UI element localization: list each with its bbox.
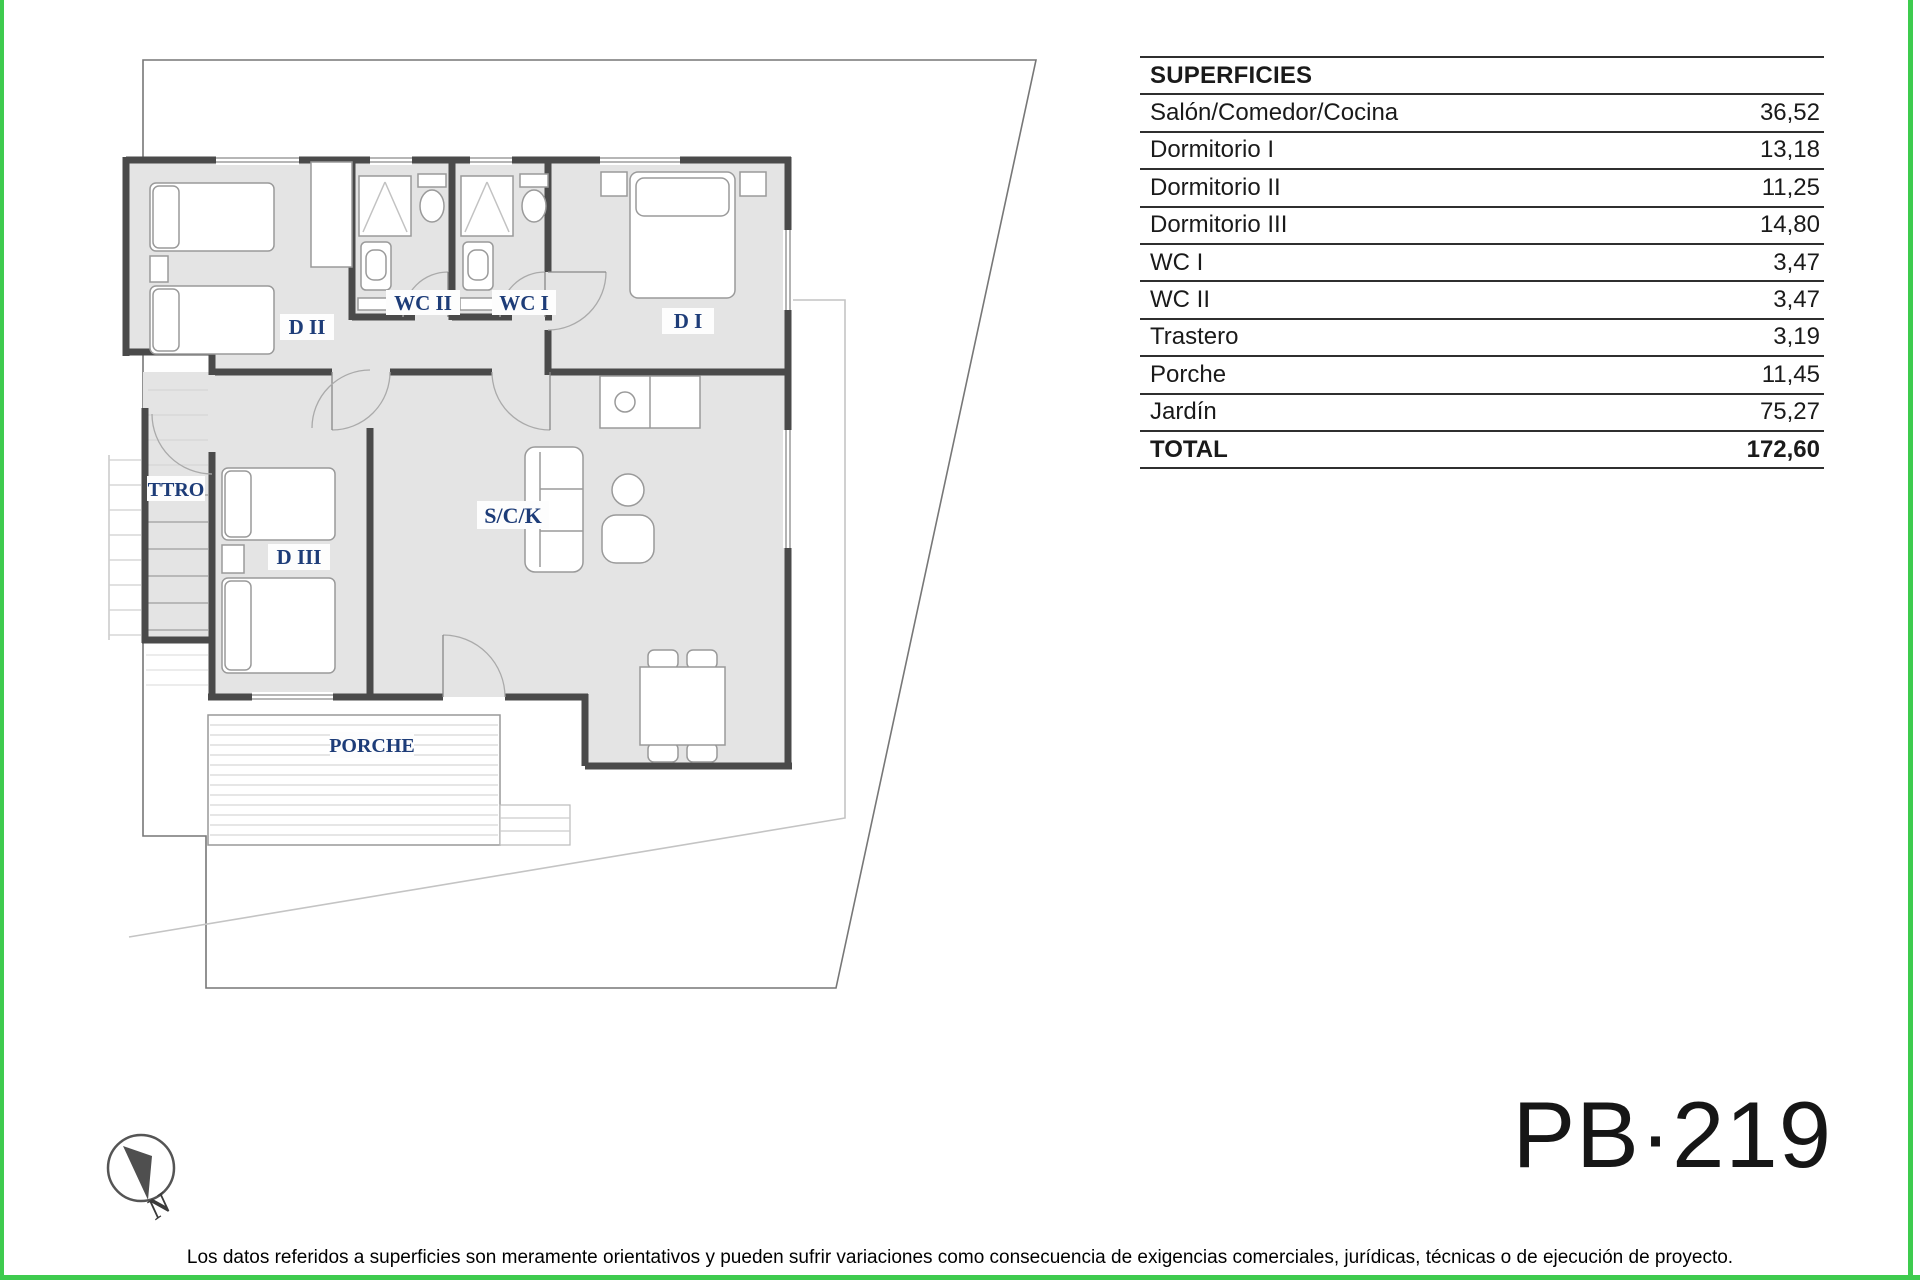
row-label: Trastero	[1140, 325, 1773, 349]
table-row: Dormitorio I 13,18	[1140, 131, 1824, 168]
table-row: Porche 11,45	[1140, 355, 1824, 392]
table-row: Dormitorio III 14,80	[1140, 206, 1824, 243]
row-label: Dormitorio III	[1140, 213, 1760, 237]
row-value: 11,45	[1762, 363, 1824, 387]
row-label: Dormitorio I	[1140, 138, 1760, 162]
plan-code: PB·219	[1380, 1088, 1832, 1182]
green-border-left	[0, 0, 4, 1280]
row-value: 3,47	[1773, 288, 1824, 312]
table-row: WC I 3,47	[1140, 243, 1824, 280]
green-border-bottom	[0, 1275, 1920, 1280]
north-arrow: N	[108, 1135, 179, 1226]
row-label: WC I	[1140, 251, 1773, 275]
row-value: 11,25	[1762, 176, 1824, 200]
table-header-label: SUPERFICIES	[1140, 64, 1824, 88]
disclaimer-text: Los datos referidos a superficies son me…	[0, 1247, 1920, 1269]
row-label: Jardín	[1140, 400, 1760, 424]
room-label-d2: D II	[289, 315, 326, 339]
room-label-d3: D III	[277, 545, 322, 569]
row-label: Dormitorio II	[1140, 176, 1762, 200]
room-label-wc1: WC I	[499, 291, 549, 315]
row-label: Salón/Comedor/Cocina	[1140, 101, 1760, 125]
row-value: 3,47	[1773, 251, 1824, 275]
row-value: 36,52	[1760, 101, 1824, 125]
row-label: WC II	[1140, 288, 1773, 312]
room-label-ttro: TTRO	[148, 479, 205, 501]
floor-plan: D II WC II WC I D I TTRO D III S/C/K POR…	[90, 30, 1060, 1240]
total-value: 172,60	[1747, 438, 1824, 462]
table-total-row: TOTAL 172,60	[1140, 430, 1824, 469]
table-row: Jardín 75,27	[1140, 393, 1824, 430]
room-label-wc2: WC II	[394, 291, 452, 315]
total-label: TOTAL	[1140, 438, 1747, 462]
plan-sheet: { "colors": { "accent_green": "#3ecb4e",…	[0, 0, 1920, 1280]
row-value: 3,19	[1773, 325, 1824, 349]
row-value: 14,80	[1760, 213, 1824, 237]
row-value: 75,27	[1760, 400, 1824, 424]
table-row: WC II 3,47	[1140, 280, 1824, 317]
surfaces-table: SUPERFICIES Salón/Comedor/Cocina 36,52 D…	[1140, 56, 1824, 469]
surfaces-table-header: SUPERFICIES	[1140, 56, 1824, 93]
table-row: Salón/Comedor/Cocina 36,52	[1140, 93, 1824, 130]
room-label-d1: D I	[674, 309, 703, 333]
table-row: Dormitorio II 11,25	[1140, 168, 1824, 205]
row-value: 13,18	[1760, 138, 1824, 162]
room-label-sck: S/C/K	[484, 503, 541, 528]
green-border-right	[1908, 0, 1913, 1280]
table-row: Trastero 3,19	[1140, 318, 1824, 355]
room-label-porche: PORCHE	[329, 735, 415, 757]
row-label: Porche	[1140, 363, 1762, 387]
